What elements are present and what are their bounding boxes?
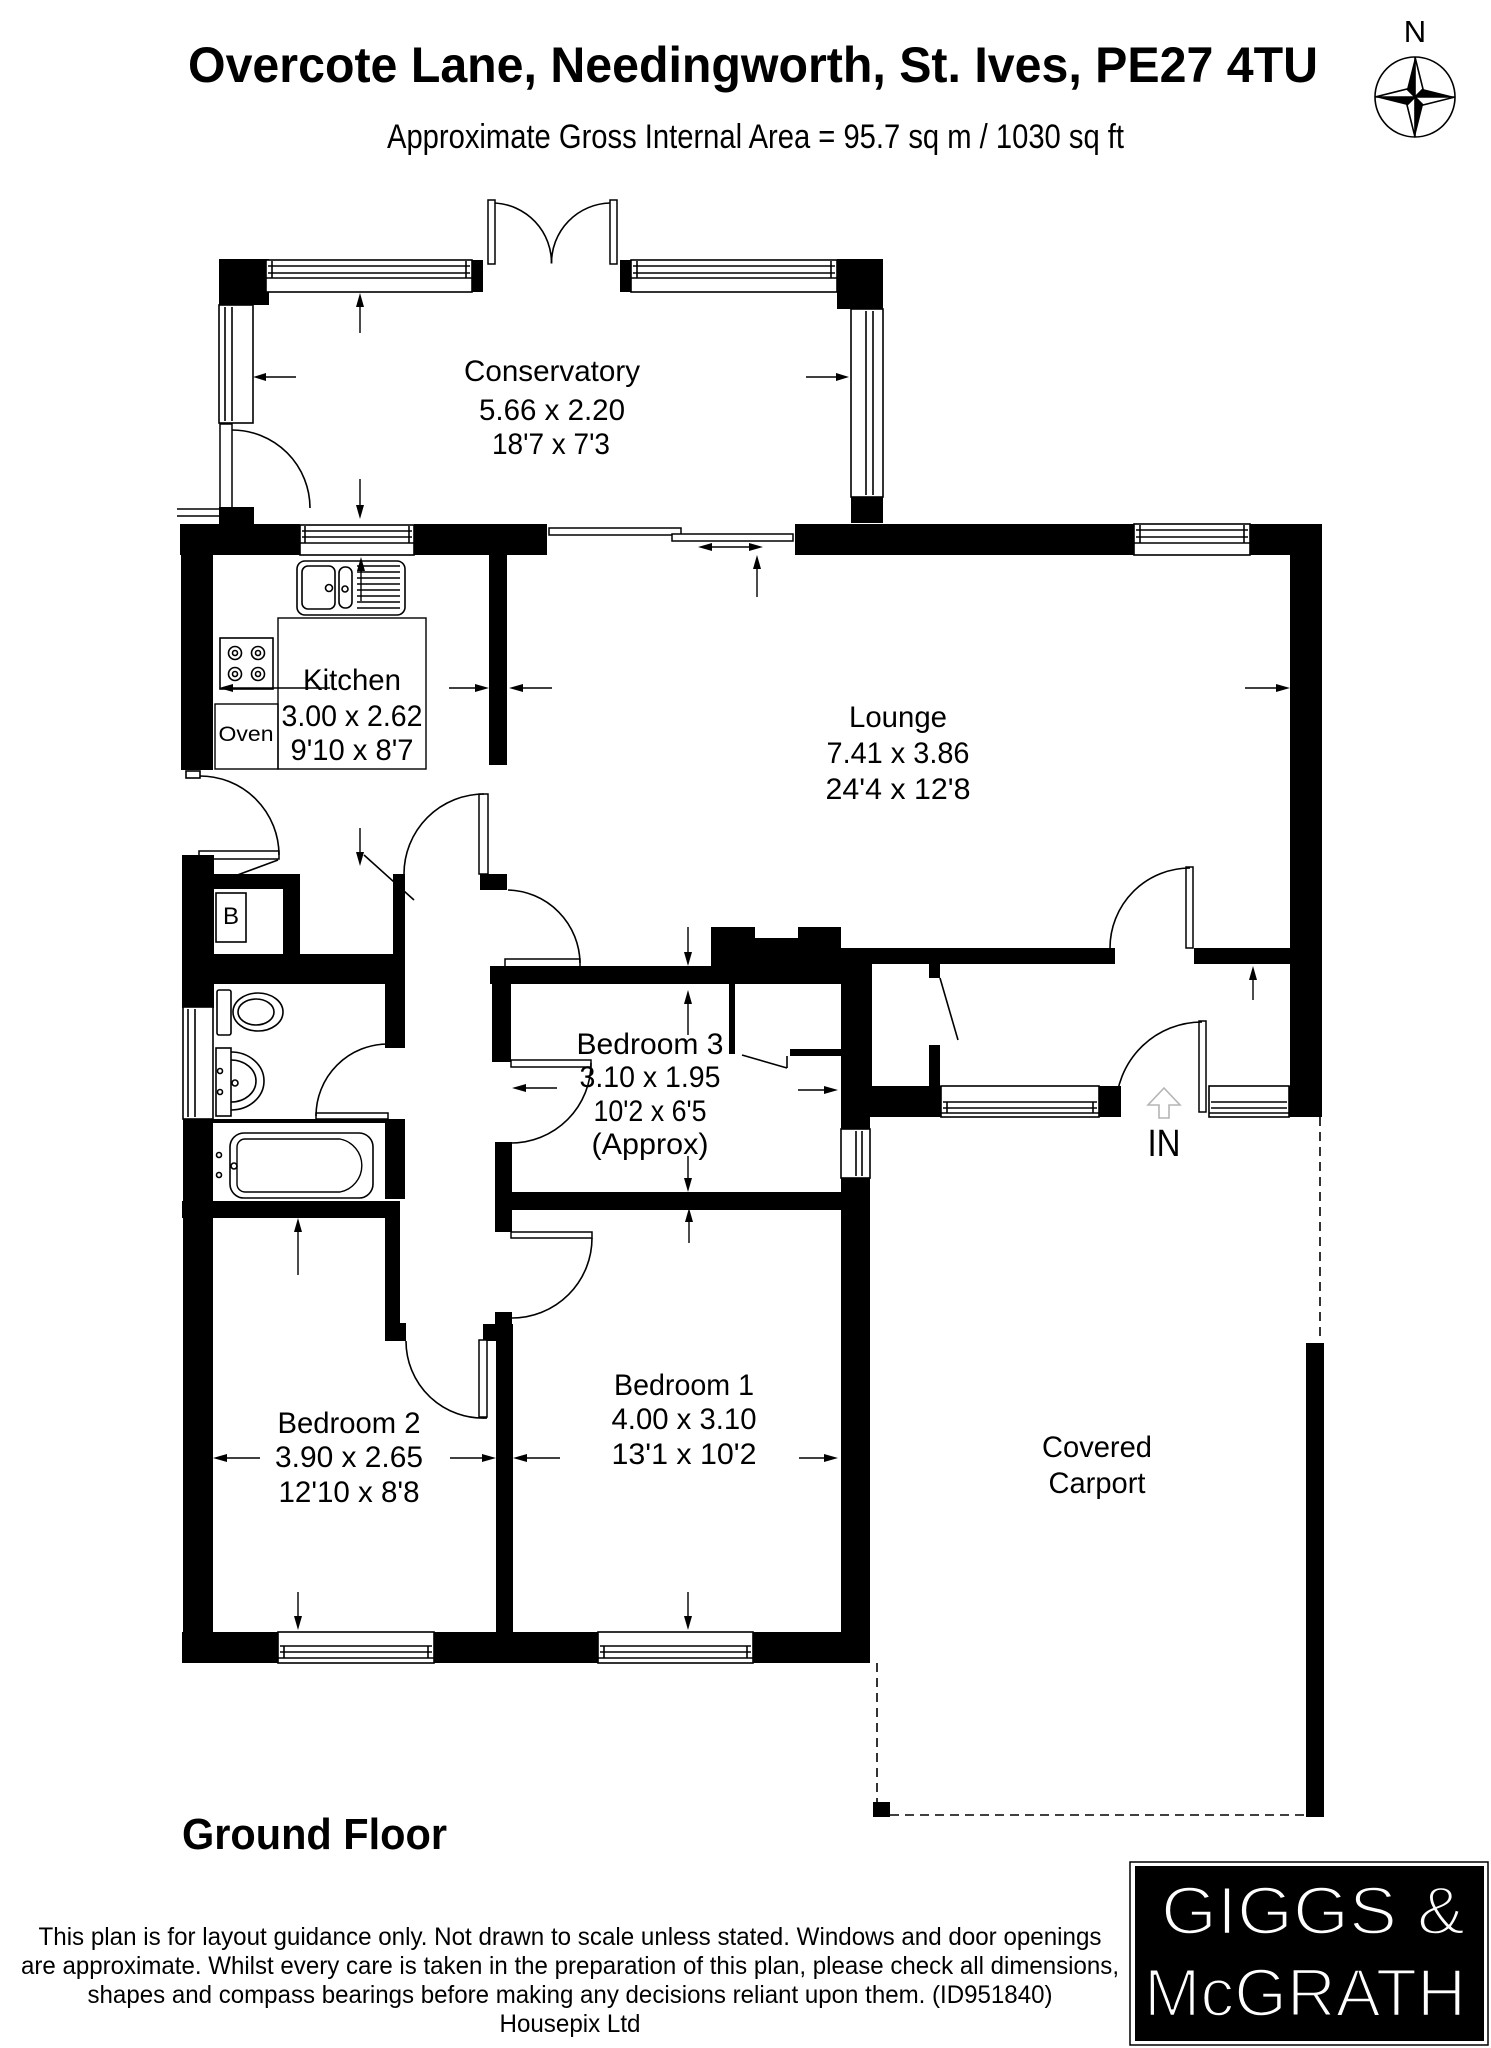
svg-text:Kitchen: Kitchen: [303, 664, 401, 697]
svg-text:are approximate. Whilst every: are approximate. Whilst every care is ta…: [21, 1952, 1119, 1980]
svg-text:McGRATH: McGRATH: [1144, 1955, 1466, 2031]
svg-text:Bedroom 3: Bedroom 3: [577, 1028, 724, 1061]
svg-text:shapes and compass bearings be: shapes and compass bearings before makin…: [88, 1981, 1053, 2009]
svg-text:B: B: [223, 903, 239, 930]
svg-text:Conservatory: Conservatory: [464, 355, 640, 388]
svg-text:Overcote Lane, Needingworth, S: Overcote Lane, Needingworth, St. Ives, P…: [188, 37, 1318, 93]
svg-text:Ground Floor: Ground Floor: [182, 1810, 447, 1859]
svg-text:9'10 x 8'7: 9'10 x 8'7: [291, 734, 414, 767]
svg-text:Oven: Oven: [219, 723, 274, 746]
svg-text:3.00 x 2.62: 3.00 x 2.62: [282, 700, 423, 733]
svg-text:Bedroom 2: Bedroom 2: [278, 1407, 421, 1440]
svg-text:13'1 x 10'2: 13'1 x 10'2: [612, 1438, 757, 1471]
svg-text:GIGGS &: GIGGS &: [1161, 1873, 1465, 1949]
svg-text:Covered: Covered: [1042, 1431, 1152, 1464]
svg-text:12'10 x 8'8: 12'10 x 8'8: [279, 1476, 420, 1509]
svg-text:3.10 x 1.95: 3.10 x 1.95: [580, 1061, 721, 1094]
svg-text:(Approx): (Approx): [592, 1128, 709, 1161]
svg-text:Approximate Gross Internal Are: Approximate Gross Internal Area = 95.7 s…: [387, 118, 1124, 156]
svg-text:N: N: [1404, 14, 1426, 49]
svg-text:10'2 x 6'5: 10'2 x 6'5: [594, 1095, 707, 1128]
svg-text:IN: IN: [1148, 1123, 1181, 1165]
svg-text:7.41 x 3.86: 7.41 x 3.86: [827, 737, 970, 770]
svg-text:Bedroom 1: Bedroom 1: [614, 1369, 754, 1402]
svg-text:18'7 x 7'3: 18'7 x 7'3: [492, 428, 610, 461]
svg-text:4.00 x 3.10: 4.00 x 3.10: [612, 1403, 757, 1436]
svg-text:Housepix Ltd: Housepix Ltd: [500, 2010, 641, 2038]
svg-text:Lounge: Lounge: [849, 701, 947, 734]
svg-text:Carport: Carport: [1049, 1467, 1147, 1500]
svg-text:This plan is for layout guidan: This plan is for layout guidance only. N…: [39, 1923, 1102, 1951]
svg-text:24'4 x 12'8: 24'4 x 12'8: [826, 773, 971, 806]
svg-text:3.90 x 2.65: 3.90 x 2.65: [275, 1441, 423, 1474]
svg-text:5.66 x 2.20: 5.66 x 2.20: [479, 394, 625, 427]
